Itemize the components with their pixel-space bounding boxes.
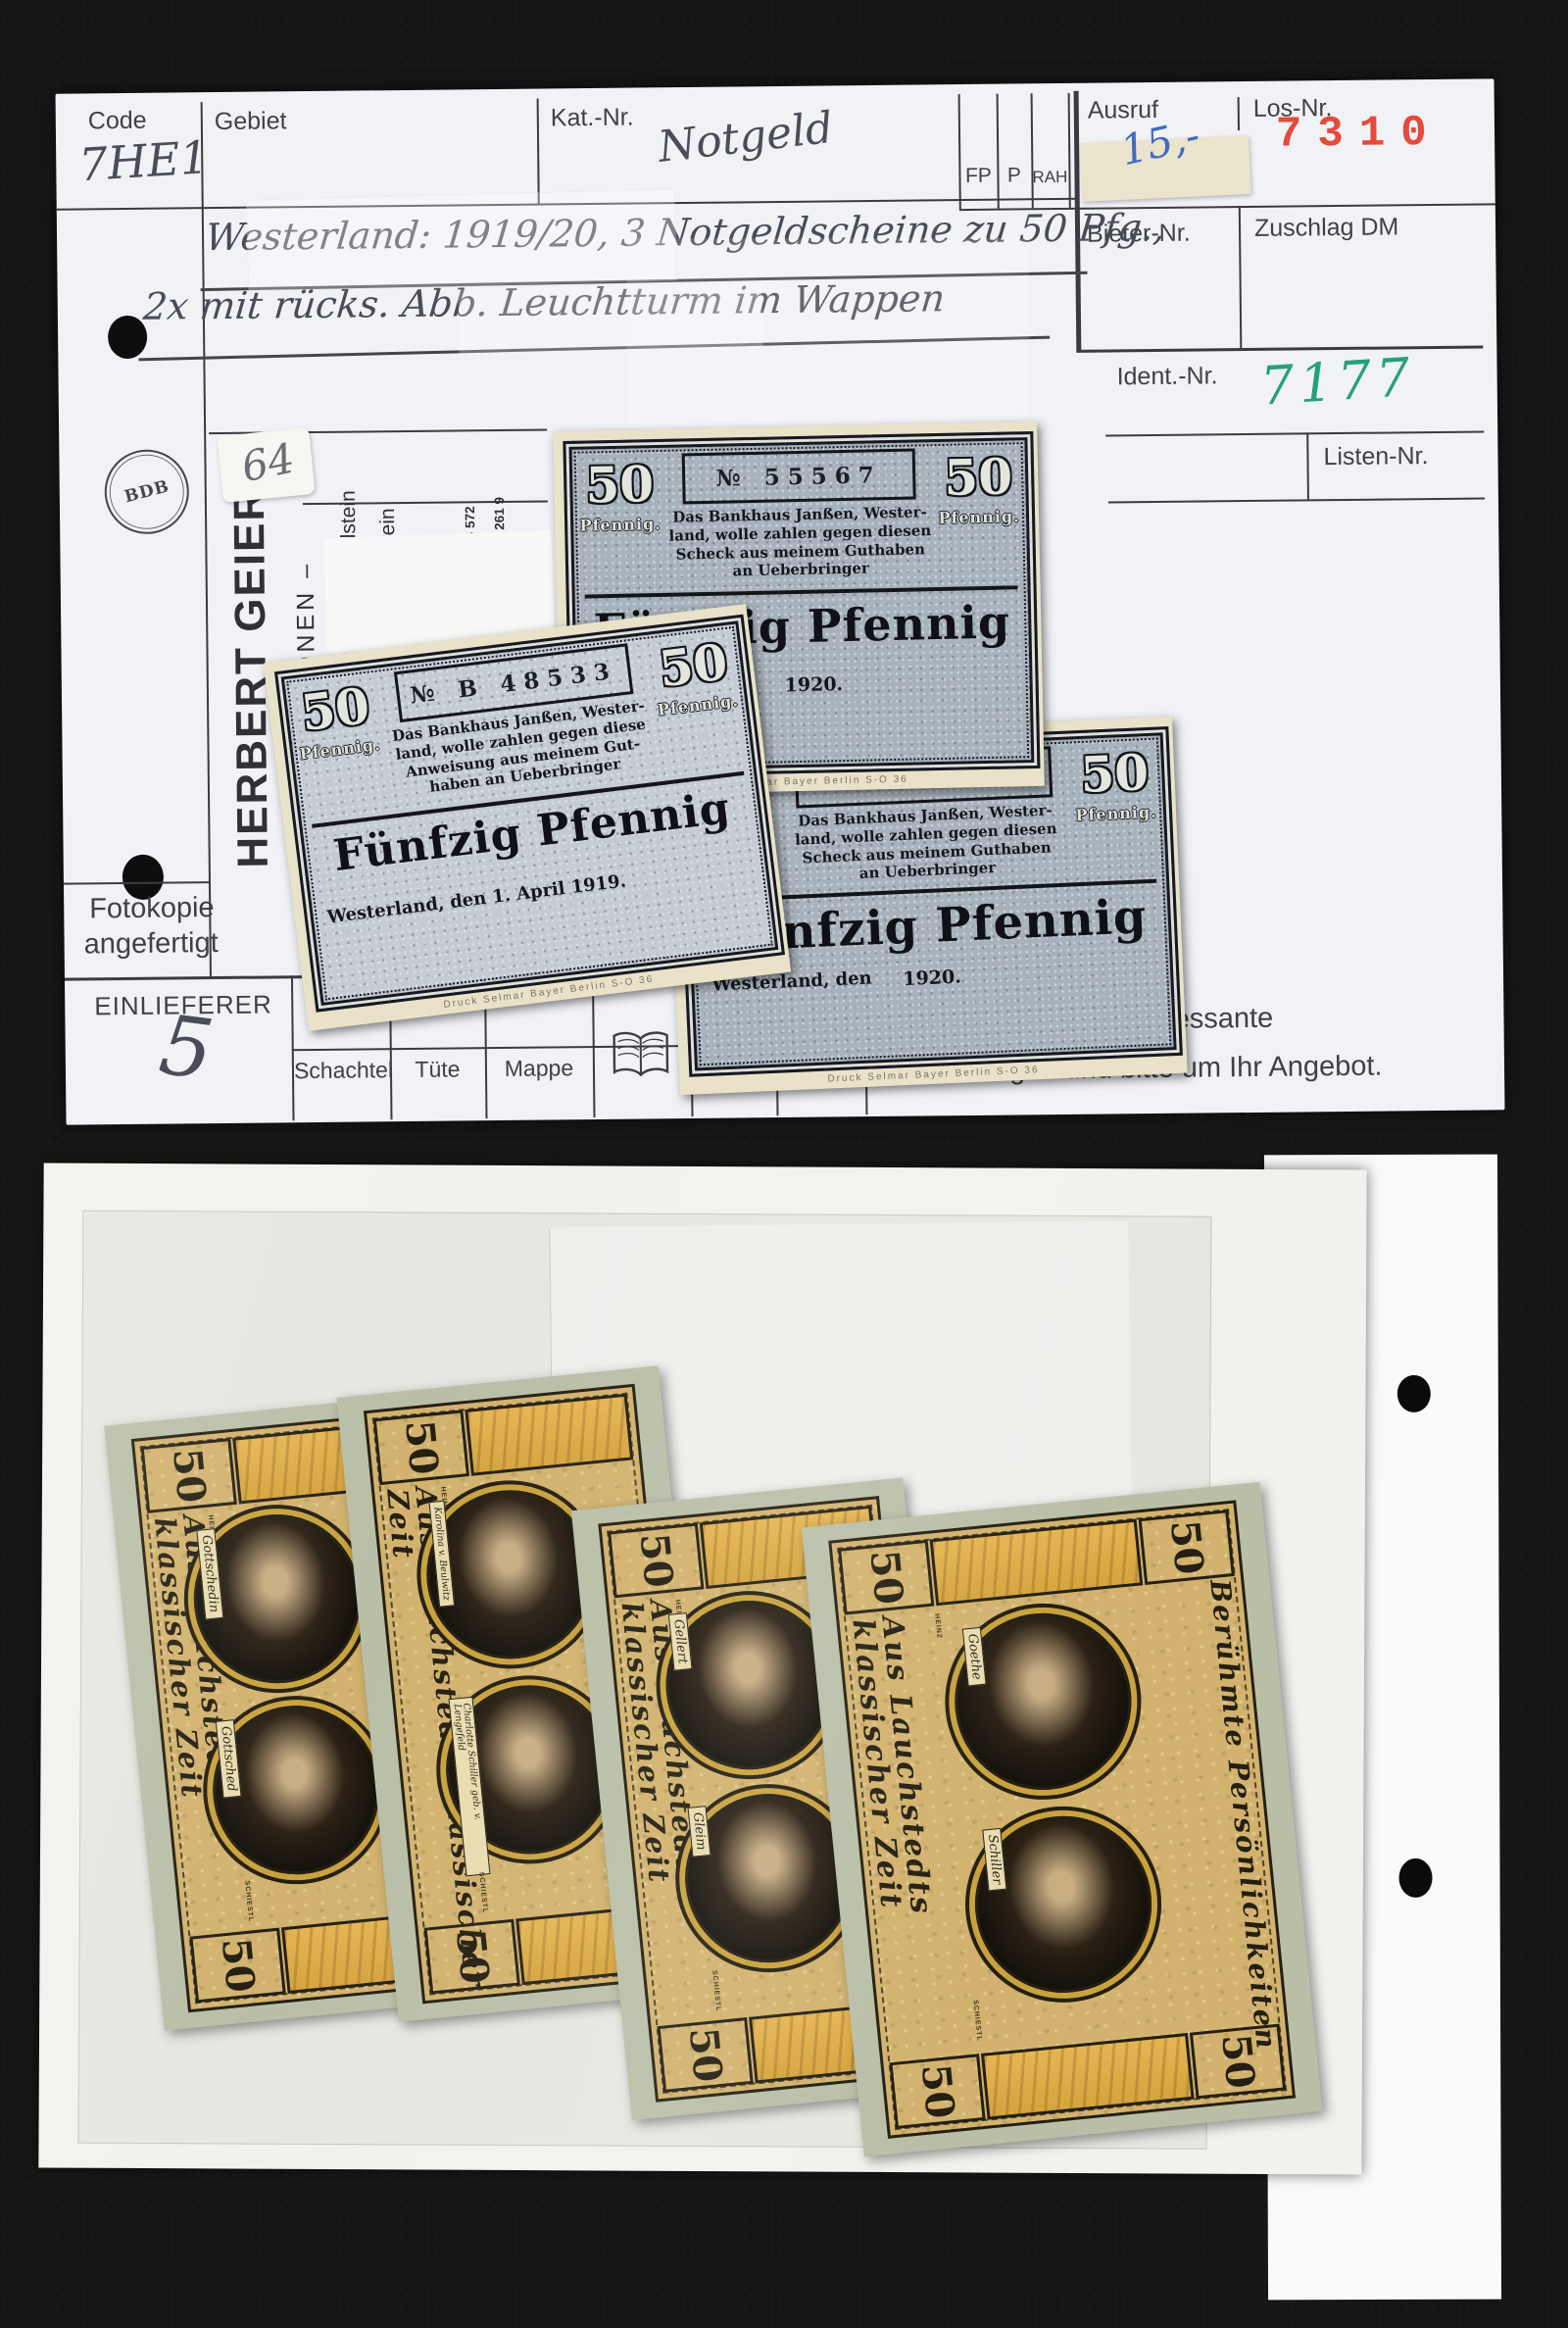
listen-divider-line (1306, 432, 1309, 499)
kat-divider-line (537, 99, 540, 204)
description-line-2: 2x mit rücks. Abb. Leuchtturm im Wappen (141, 276, 947, 328)
banknote-a-date: 1920. (784, 673, 843, 696)
note-3-portrait-bottom-label: Gleim (687, 1806, 710, 1857)
note-4-leaf-band-bottom (981, 2033, 1195, 2120)
description-line-1: Westerland: 1919/20, 3 Notgeldscheine zu… (204, 206, 1168, 259)
los-nr-value: 7310 (1276, 109, 1443, 160)
listen-nr-label: Listen-Nr. (1323, 442, 1428, 471)
note-3-denomination-top: 50 (608, 1523, 704, 1599)
code-label: Code (88, 107, 147, 136)
photograph-of-notgeld-reverse: 50 Aus Lauchstedts klassischer Zeit HEIN… (38, 1163, 1366, 2174)
note-1-denomination-bottom: 50 (189, 1928, 285, 2004)
ident-row-line (1105, 430, 1484, 436)
banknote-b-date: Westerland, den 1. April 1919. (326, 870, 627, 927)
p-label: P (999, 164, 1029, 187)
album-punch-hole-top (1397, 1375, 1431, 1412)
note-1-denomination-top: 50 (141, 1438, 237, 1513)
lot-64-sticker-value: 64 (238, 433, 299, 491)
fp-label: FP (962, 165, 994, 188)
banknote-b-denomination-left: 50 Pfennig. (287, 680, 385, 765)
banknote-a-denomination-left: 50 Pfennig. (574, 460, 666, 535)
note-4-denomination-top-right: 50 (1139, 1510, 1235, 1585)
note-4-leaf-band-top (930, 1519, 1144, 1607)
fotokopie-label-2: angefertigt (83, 927, 218, 961)
listen-row-line (1108, 497, 1485, 503)
ident-nr-label: Ident.-Nr. (1116, 362, 1217, 391)
banknote-westerland-48533: 50 Pfennig. 50 Pfennig. № B 48533 Das Ba… (264, 604, 791, 1031)
note-2-denomination-top: 50 (373, 1410, 469, 1485)
zuschlag-label: Zuschlag DM (1254, 213, 1399, 243)
banknote-c-denomination-right: 50 Pfennig. (1068, 748, 1161, 825)
banknote-c-date-year: 1920. (903, 966, 961, 991)
bin-schachtel-label: Schachtel (294, 1057, 390, 1084)
bin-divider-3 (592, 983, 595, 1117)
kat-nr-value-handwritten: Notgeld (656, 103, 836, 173)
p-divider-line (997, 94, 1000, 209)
description-underline-2 (138, 336, 1050, 362)
album-punch-hole-bottom (1398, 1858, 1432, 1898)
banknote-a-serial: № 55567 (682, 448, 916, 504)
los-divider-mark (1238, 97, 1240, 130)
note-3-denomination-bottom: 50 (658, 2017, 754, 2093)
ident-nr-value-handwritten: 7177 (1258, 346, 1416, 418)
banknote-a-denomination-right: 50 Pfennig. (933, 452, 1025, 527)
note-4-denomination-bottom-left: 50 (889, 2054, 985, 2129)
note-2-denomination-bottom: 50 (424, 1919, 520, 1995)
banknote-b-field: 50 Pfennig. 50 Pfennig. № B 48533 Das Ba… (274, 615, 785, 1013)
fotokopie-label-1: Fotokopie (89, 892, 215, 925)
kat-nr-label: Kat.-Nr. (551, 104, 634, 133)
banknote-a-body-text: Das Bankhaus Janßen, Wester- land, wolle… (656, 503, 946, 582)
note-4-printed-area: 50 50 Aus Lauchstedts klassischer Zeit B… (828, 1500, 1296, 2138)
notgeld-lauchstedt-note-4: 50 50 Aus Lauchstedts klassischer Zeit B… (802, 1482, 1323, 2156)
fp-divider-line (958, 94, 961, 209)
note-4-denomination-bottom-right: 50 (1190, 2024, 1286, 2100)
scan-background: Code Gebiet Kat.-Nr. FP P RAH. Ausruf Lo… (0, 0, 1568, 2328)
code-value-handwritten: 7HE1 (77, 130, 210, 191)
bin-mappe-label: Mappe (485, 1055, 593, 1082)
note-4-denomination-top-left: 50 (838, 1540, 934, 1615)
bieter-divider-line (1239, 206, 1243, 348)
note-2-leaf-band-top (465, 1394, 633, 1476)
lot-64-sticker: 64 (217, 427, 315, 503)
banknote-c-body-text: Das Bankhaus Janßen, Wester- land, wolle… (769, 800, 1084, 887)
bin-tuete-label: Tüte (390, 1056, 485, 1083)
bieter-row-line (1076, 345, 1483, 352)
rah-right-line (1068, 93, 1071, 208)
open-book-icon (611, 1028, 672, 1082)
einlieferer-value-handwritten: 5 (155, 997, 220, 1099)
bdb-logo-text: BDB (122, 476, 171, 507)
gebiet-label: Gebiet (215, 107, 287, 136)
punch-hole-top (108, 316, 147, 359)
rah-divider-line (1031, 93, 1034, 208)
rah-label: RAH. (1032, 168, 1067, 187)
banknote-b-main-text: Fünfzig Pfennig (298, 779, 767, 886)
note-4-artist-mark-top: HEINZ (933, 1613, 943, 1640)
note-4-series-title-right: Berühmte Persönlichkeiten (1205, 1578, 1280, 2052)
bdb-auction-association-logo: BDB (104, 449, 189, 534)
note-4-artist-mark-bottom: SCHIESTL (972, 2000, 983, 2042)
